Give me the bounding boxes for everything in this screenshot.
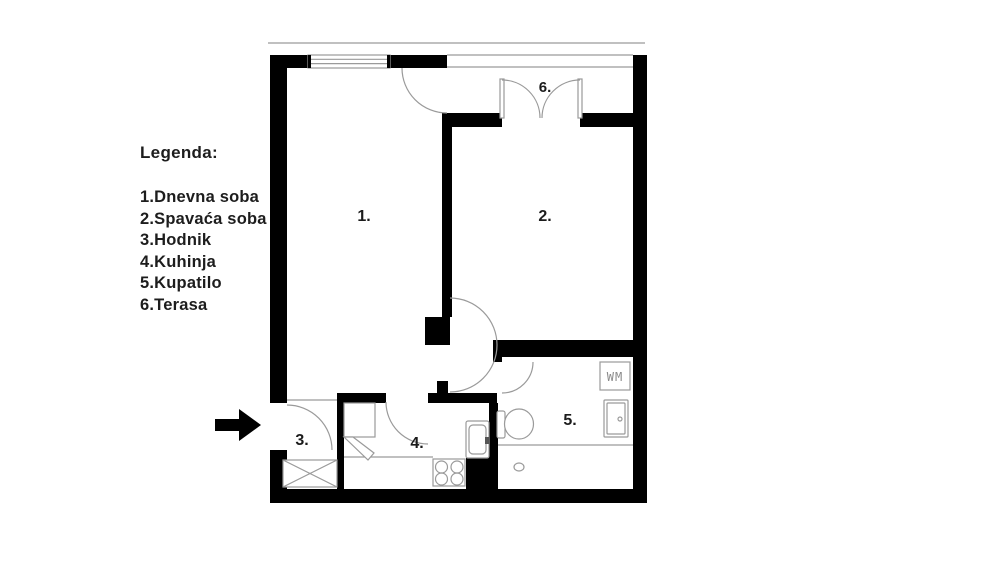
window-end-cap	[308, 55, 311, 68]
wall-bedroom-top-left	[442, 113, 502, 127]
door-leaf-left	[500, 79, 504, 118]
entrance-arrow-icon	[215, 409, 261, 441]
door-arc-terrace-living	[402, 68, 447, 113]
room-label-kitchen: 4.	[410, 435, 423, 452]
wall-bedroom-left	[442, 127, 452, 317]
wall-kitchen-bath-divider-lower	[466, 458, 498, 489]
wall-top-right-segment	[390, 55, 447, 68]
wall-left-upper	[270, 55, 287, 403]
bathtub-drain	[514, 463, 524, 471]
door-arc-left	[502, 80, 540, 118]
wall-stub-hall	[425, 317, 450, 345]
stove	[433, 459, 465, 486]
wall-bedroom-bottom	[495, 340, 633, 357]
sink-faucet	[485, 437, 489, 444]
boiler-cabinet	[604, 400, 628, 437]
window-frame	[308, 55, 390, 68]
room-label-living-room: 1.	[357, 208, 370, 225]
bathtub	[498, 445, 633, 471]
kitchen-sink	[466, 421, 489, 458]
wall-bedroom-top-right	[580, 113, 633, 127]
toilet	[497, 409, 534, 439]
door-arc-hall-junction	[450, 345, 497, 392]
wall-bottom	[270, 489, 647, 503]
wall-kitchen-top-left	[337, 393, 386, 403]
room-label-terrace: 6.	[539, 79, 552, 96]
wardrobe-hall	[283, 460, 337, 487]
door-arc-bathroom	[502, 362, 533, 393]
floor-plan-drawing: WM 1. 2. 3. 4. 5. 6.	[0, 0, 1000, 562]
toilet-bowl	[505, 409, 534, 439]
door-arc-bedroom	[450, 298, 497, 345]
window-living-room	[308, 55, 390, 68]
room-label-bathroom: 5.	[563, 412, 576, 429]
room-label-hallway: 3.	[295, 432, 308, 449]
washing-machine-label: WM	[607, 370, 623, 384]
wall-right	[633, 55, 647, 503]
wall-hall-kitchen-divider	[337, 393, 344, 489]
door-leaf-right	[578, 79, 582, 118]
window-end-cap	[387, 55, 390, 68]
wall-kitchen-pillar	[437, 381, 448, 393]
wall-kitchen-top-right	[428, 393, 497, 403]
kitchen-corner-cabinet	[344, 403, 375, 460]
door-arc-entrance	[287, 405, 332, 450]
cabinet-body	[344, 403, 375, 437]
toilet-tank	[497, 411, 505, 438]
washing-machine: WM	[600, 362, 630, 390]
room-label-bedroom: 2.	[538, 208, 551, 225]
floor-plan-page: Legenda: 1.Dnevna soba 2.Spavaća soba 3.…	[0, 0, 1000, 562]
